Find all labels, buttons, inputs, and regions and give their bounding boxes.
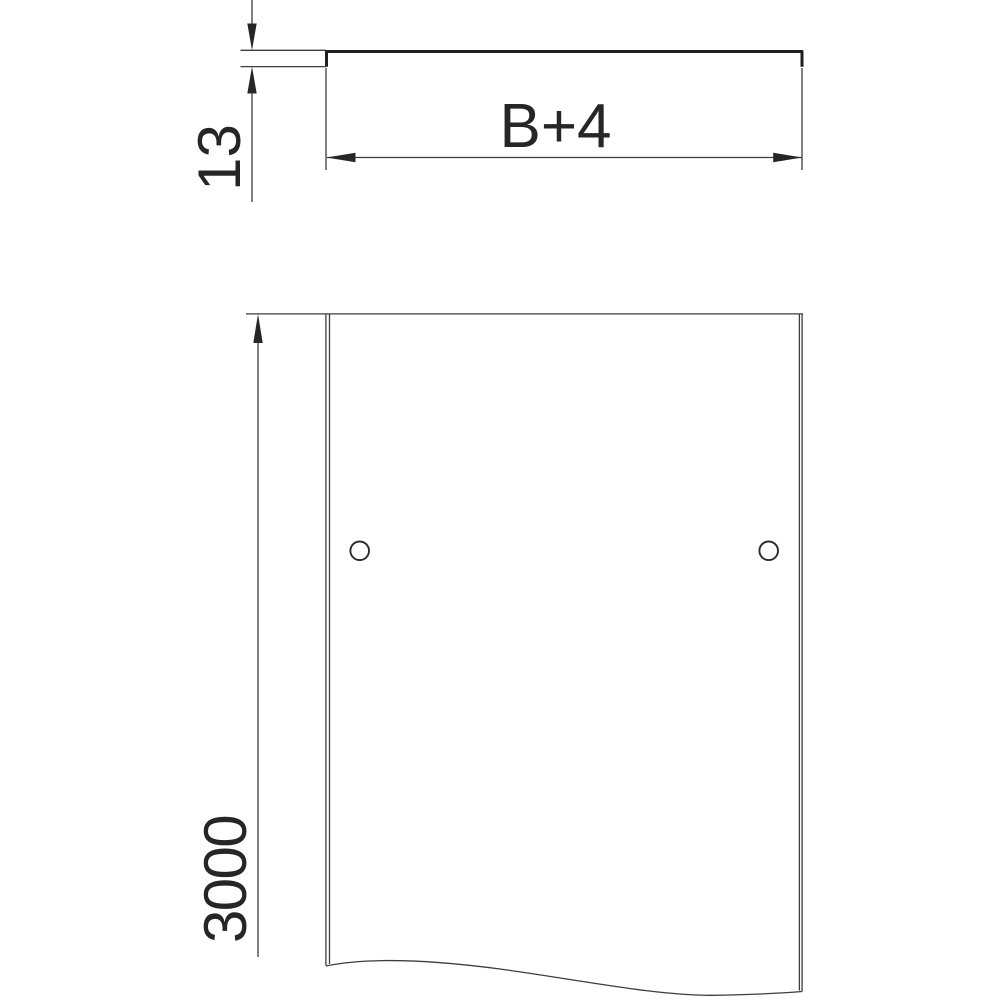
svg-text:3000: 3000 — [192, 816, 259, 943]
svg-text:13: 13 — [186, 124, 253, 191]
svg-text:B+4: B+4 — [499, 92, 611, 161]
